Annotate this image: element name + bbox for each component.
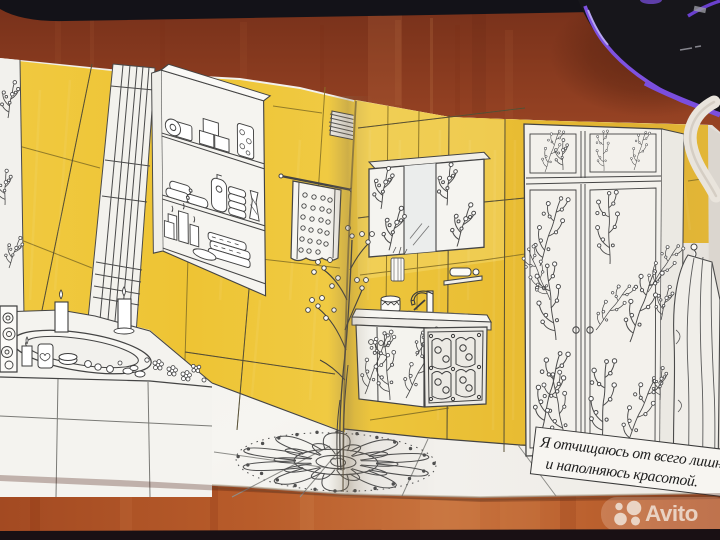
svg-text:Avito: Avito: [645, 501, 698, 526]
